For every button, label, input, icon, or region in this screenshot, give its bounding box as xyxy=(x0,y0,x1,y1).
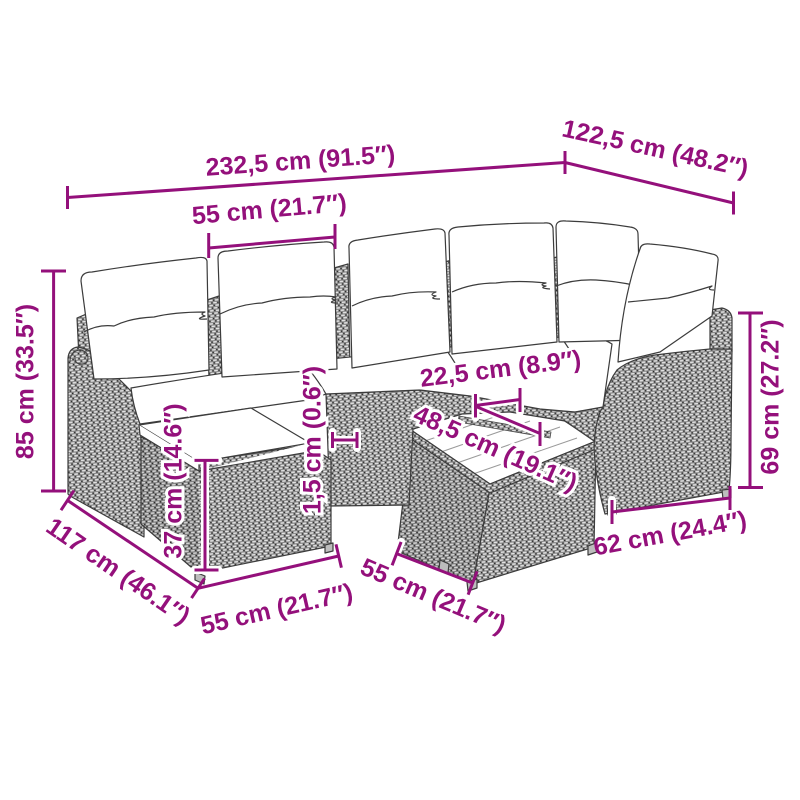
svg-text:69 cm (27.2″): 69 cm (27.2″) xyxy=(757,319,785,474)
svg-text:37 cm (14.6″): 37 cm (14.6″) xyxy=(160,403,188,558)
svg-text:1,5 cm (0.6″): 1,5 cm (0.6″) xyxy=(299,366,327,514)
svg-text:85 cm (33.5″): 85 cm (33.5″) xyxy=(12,304,40,459)
